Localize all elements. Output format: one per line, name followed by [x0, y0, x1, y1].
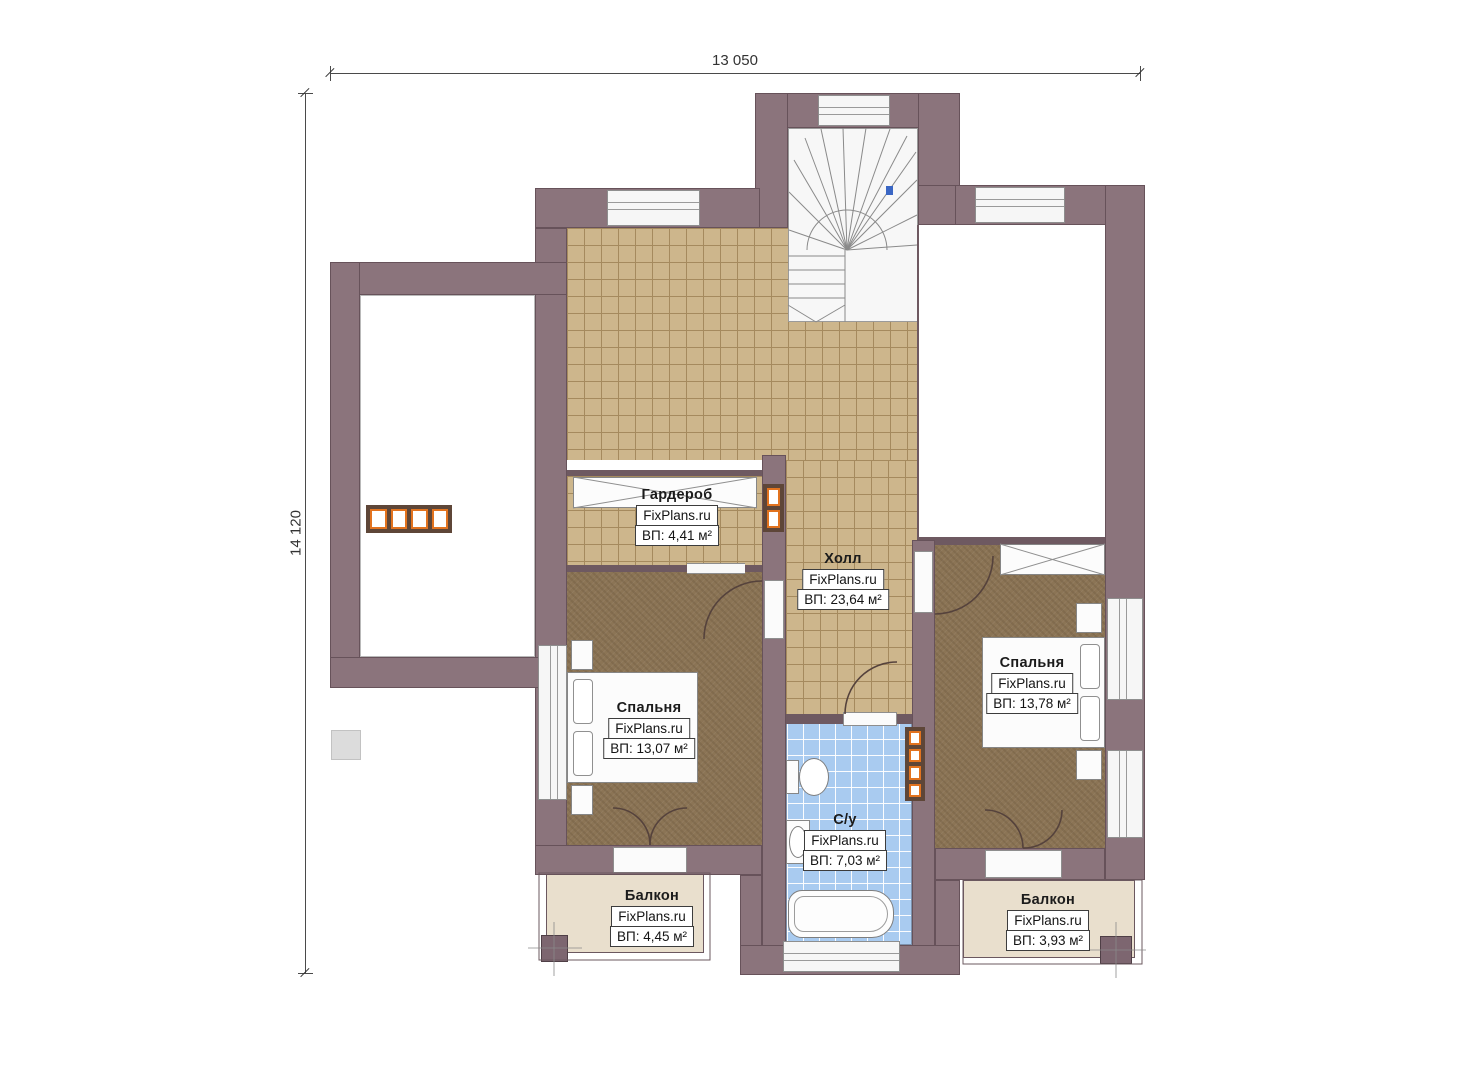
stairwell [788, 128, 918, 322]
balcony-right-post [1100, 936, 1132, 964]
dimension-line-top [330, 73, 1140, 74]
wall-left-wing-top [330, 262, 567, 295]
pillow [1080, 644, 1100, 689]
room-area: ВП: 13,78 м² [986, 693, 1078, 714]
room-name: Балкон [625, 888, 679, 904]
wall-stair-tower-right [918, 93, 960, 188]
left-wing-void [360, 295, 535, 657]
dimension-line-left [305, 93, 306, 973]
room-label-bedroom-right: Спальня FixPlans.ru ВП: 13,78 м² [986, 655, 1078, 714]
wall-corner-right-of-tower [918, 185, 958, 225]
watermark: FixPlans.ru [804, 830, 886, 851]
nightstand [1076, 750, 1102, 780]
room-name: С/у [833, 812, 856, 828]
watermark: FixPlans.ru [608, 718, 690, 739]
room-name: Холл [824, 551, 862, 567]
room-area: ВП: 7,03 м² [803, 850, 887, 871]
room-label-wardrobe: Гардероб FixPlans.ru ВП: 4,41 м² [635, 487, 719, 546]
room-label-balcony-left: Балкон FixPlans.ru ВП: 4,45 м² [610, 888, 694, 947]
radiator-left-wing [366, 505, 452, 533]
room-label-hall: Холл FixPlans.ru ВП: 23,64 м² [797, 551, 889, 610]
toilet-tank [786, 760, 799, 794]
french-door-balcony-left [613, 847, 687, 873]
bathtub-inner [794, 896, 888, 932]
radiator-corridor [763, 484, 784, 532]
dimension-height-label: 14 120 [288, 510, 305, 556]
watermark: FixPlans.ru [636, 505, 718, 526]
french-door-balcony-right [985, 850, 1062, 878]
pillow [1080, 696, 1100, 741]
watermark: FixPlans.ru [991, 673, 1073, 694]
window-bedroom-right-2 [1107, 750, 1143, 838]
void-space [918, 225, 1105, 537]
partition-wardrobe-top [567, 470, 762, 476]
wardrobe-cabinet-right [1000, 544, 1105, 575]
pillow [573, 679, 593, 724]
towel-radiator-bathroom [905, 727, 925, 801]
room-label-bathroom: С/у FixPlans.ru ВП: 7,03 м² [803, 812, 887, 871]
door-bathroom [843, 712, 897, 726]
nightstand [571, 785, 593, 815]
window-top-right [975, 187, 1065, 223]
void-boundary-line [917, 225, 919, 540]
room-area: ВП: 3,93 м² [1006, 930, 1090, 951]
room-name: Балкон [1021, 892, 1075, 908]
exterior-block [331, 730, 361, 760]
window-top-left [607, 190, 700, 226]
room-name: Гардероб [642, 487, 713, 503]
room-area: ВП: 23,64 м² [797, 589, 889, 610]
watermark: FixPlans.ru [611, 906, 693, 927]
watermark: FixPlans.ru [1007, 910, 1089, 931]
wall-left-wing-left [330, 262, 360, 688]
wall-corridor-left [762, 455, 786, 975]
room-name: Спальня [617, 700, 682, 716]
watermark: FixPlans.ru [802, 569, 884, 590]
room-area: ВП: 4,41 м² [635, 525, 719, 546]
floor-plan-canvas: 13 050 14 120 [0, 0, 1474, 1080]
window-bathroom [783, 941, 900, 972]
pillow [573, 731, 593, 776]
room-area: ВП: 13,07 м² [603, 738, 695, 759]
nightstand [571, 640, 593, 670]
room-name: Спальня [1000, 655, 1065, 671]
room-label-bedroom-left: Спальня FixPlans.ru ВП: 13,07 м² [603, 700, 695, 759]
window-bedroom-right-1 [1107, 598, 1143, 700]
toilet-bowl [799, 758, 829, 796]
window-stair-tower [818, 95, 890, 126]
balcony-left-post [541, 935, 568, 962]
nightstand [1076, 603, 1102, 633]
door-bedroom-left [764, 580, 784, 639]
opening-wardrobe [687, 563, 745, 574]
room-label-balcony-right: Балкон FixPlans.ru ВП: 3,93 м² [1006, 892, 1090, 951]
window-bedroom-left [538, 645, 567, 800]
wall-left-wing-bottom [330, 657, 567, 688]
dimension-width-label: 13 050 [712, 52, 758, 69]
door-bedroom-right [914, 551, 933, 613]
room-area: ВП: 4,45 м² [610, 926, 694, 947]
